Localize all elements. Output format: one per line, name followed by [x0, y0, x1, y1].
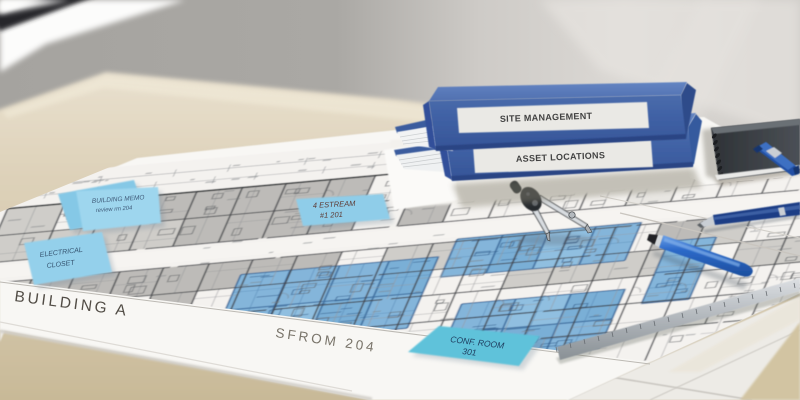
svg-text:301: 301 [462, 346, 478, 358]
svg-text:#1 201: #1 201 [320, 210, 343, 220]
